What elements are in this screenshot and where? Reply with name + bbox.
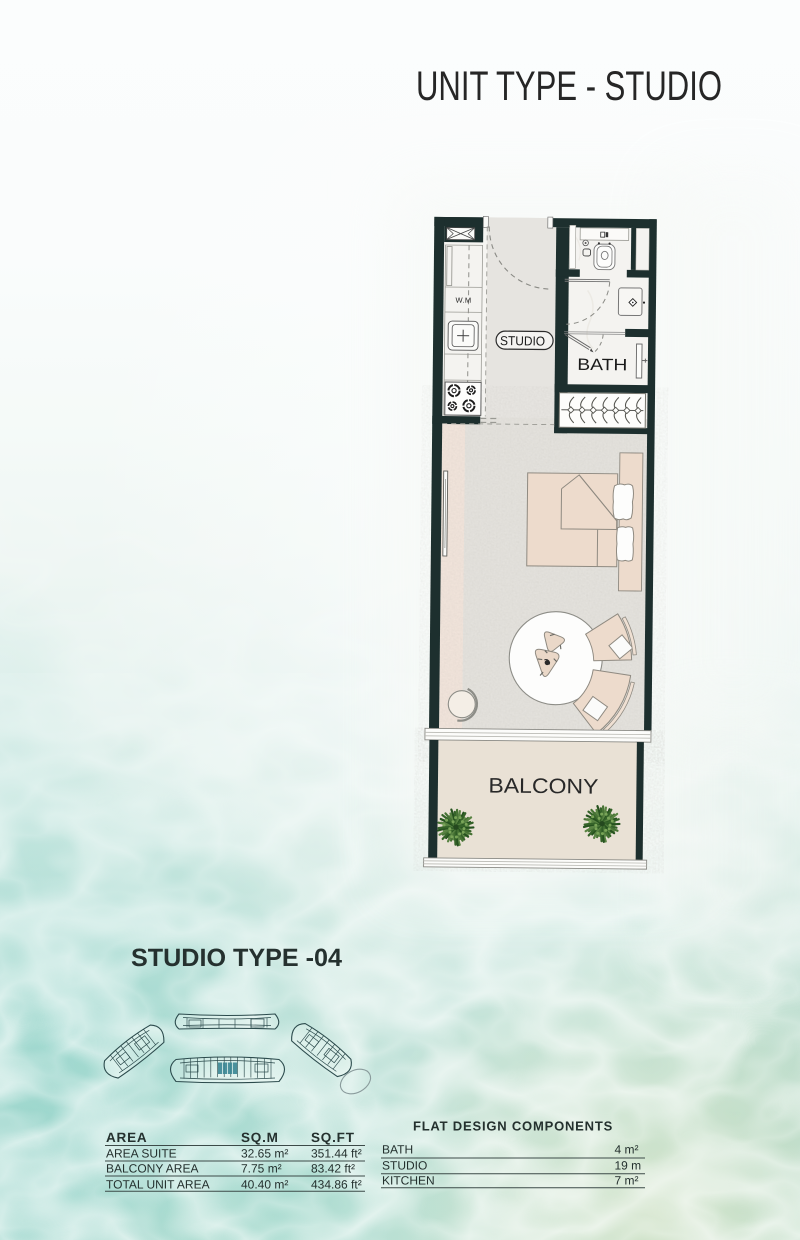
svg-text:BATH: BATH bbox=[382, 1143, 413, 1157]
svg-text:AREA SUITE: AREA SUITE bbox=[106, 1147, 177, 1161]
svg-text:83.42 ft²: 83.42 ft² bbox=[311, 1162, 355, 1176]
svg-text:FLAT DESIGN COMPONENTS: FLAT DESIGN COMPONENTS bbox=[413, 1119, 613, 1134]
svg-text:7 m²: 7 m² bbox=[615, 1174, 639, 1188]
svg-text:40.40 m²: 40.40 m² bbox=[241, 1178, 288, 1192]
svg-text:W.M: W.M bbox=[456, 296, 472, 305]
svg-text:STUDIO: STUDIO bbox=[500, 333, 545, 348]
svg-text:19 m: 19 m bbox=[615, 1159, 642, 1173]
svg-text:SQ.FT: SQ.FT bbox=[311, 1130, 355, 1145]
svg-text:KITCHEN: KITCHEN bbox=[382, 1174, 435, 1188]
svg-text:434.86 ft²: 434.86 ft² bbox=[311, 1178, 362, 1192]
svg-text:STUDIO: STUDIO bbox=[382, 1159, 427, 1173]
svg-text:BALCONY AREA: BALCONY AREA bbox=[106, 1162, 198, 1176]
svg-text:7.75 m²: 7.75 m² bbox=[241, 1162, 282, 1176]
svg-text:TOTAL UNIT AREA: TOTAL UNIT AREA bbox=[106, 1178, 210, 1192]
svg-text:BATH: BATH bbox=[577, 356, 627, 375]
svg-text:351.44 ft²: 351.44 ft² bbox=[311, 1147, 362, 1161]
svg-text:4 m²: 4 m² bbox=[615, 1143, 639, 1157]
svg-text:SQ.M: SQ.M bbox=[241, 1130, 279, 1145]
svg-text:BALCONY: BALCONY bbox=[488, 774, 598, 798]
svg-text:32.65 m²: 32.65 m² bbox=[241, 1147, 288, 1161]
svg-text:AREA: AREA bbox=[106, 1130, 147, 1145]
svg-text:UNIT TYPE - STUDIO: UNIT TYPE - STUDIO bbox=[416, 62, 722, 109]
svg-text:STUDIO TYPE -04: STUDIO TYPE -04 bbox=[131, 944, 342, 972]
